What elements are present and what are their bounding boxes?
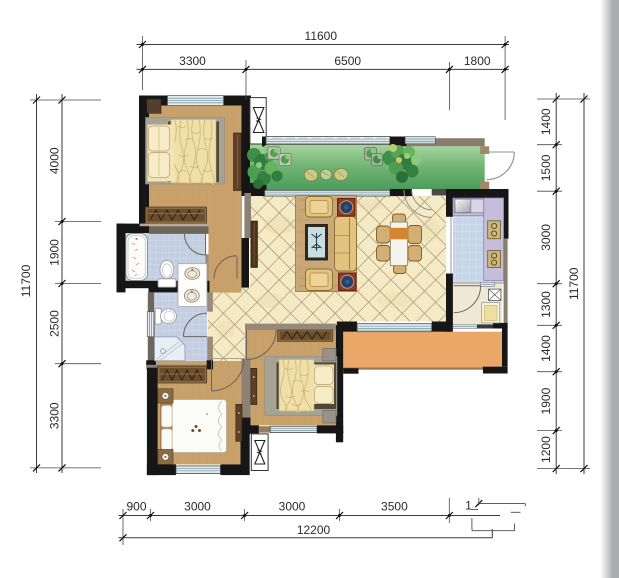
svg-text:2500: 2500 [48, 310, 62, 337]
svg-text:3000: 3000 [279, 499, 306, 513]
svg-text:11700: 11700 [19, 264, 33, 297]
svg-text:1900: 1900 [48, 239, 62, 266]
svg-text:6500: 6500 [334, 54, 361, 68]
svg-text:3300: 3300 [48, 402, 62, 429]
svg-text:11700: 11700 [567, 267, 581, 300]
svg-text:4000: 4000 [48, 147, 62, 174]
svg-text:3300: 3300 [179, 54, 206, 68]
svg-text:1300: 1300 [539, 291, 553, 318]
svg-text:1400: 1400 [539, 108, 553, 135]
svg-text:3000: 3000 [539, 224, 553, 251]
svg-text:3000: 3000 [184, 499, 211, 513]
svg-text:1500: 1500 [539, 154, 553, 181]
svg-text:1900: 1900 [539, 387, 553, 414]
svg-text:12200: 12200 [297, 523, 331, 537]
svg-text:1200: 1200 [539, 436, 553, 463]
svg-text:1800: 1800 [464, 54, 491, 68]
svg-text:3500: 3500 [381, 499, 408, 513]
svg-text:1: 1 [465, 498, 472, 512]
svg-text:1400: 1400 [539, 335, 553, 362]
svg-text:900: 900 [126, 499, 146, 513]
svg-text:11600: 11600 [305, 29, 338, 43]
